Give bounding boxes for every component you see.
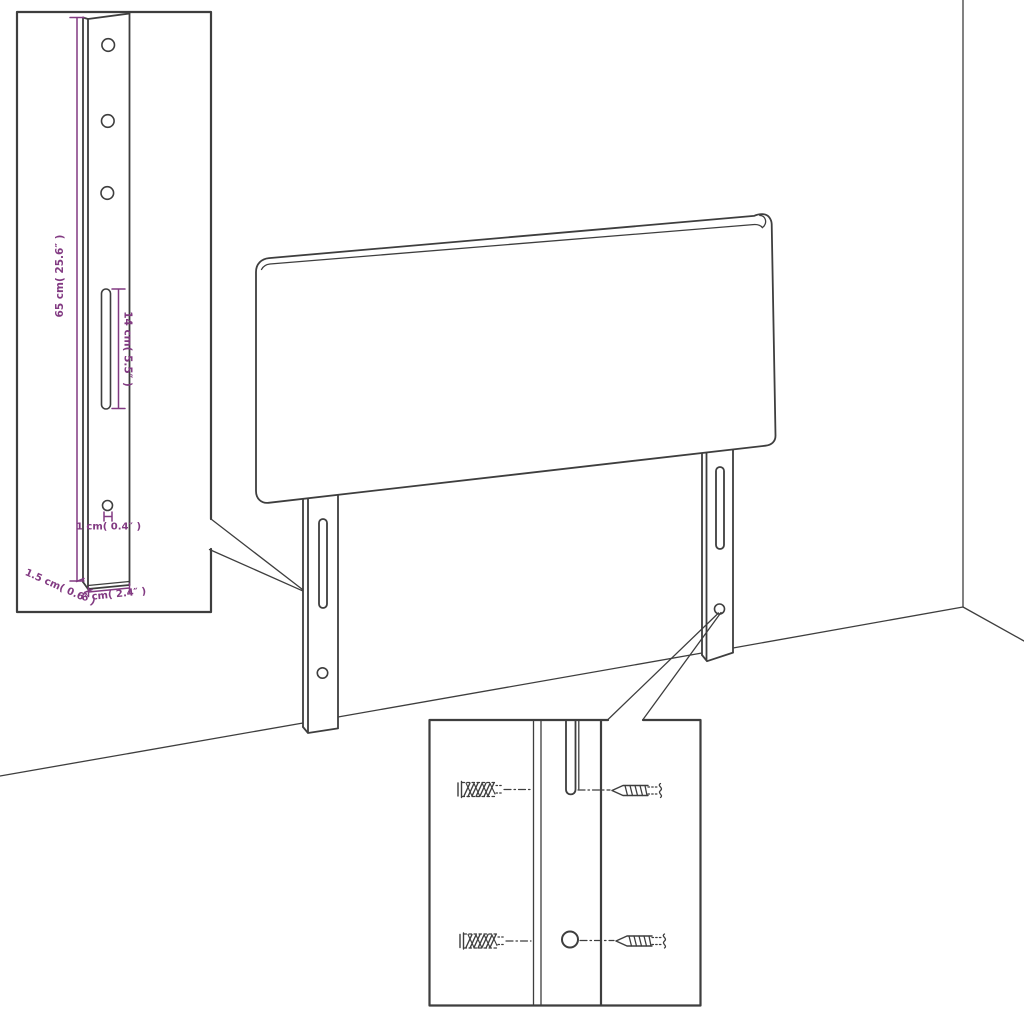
- headboard-right-leg: [702, 446, 733, 661]
- mounting-detail-inset: [430, 613, 722, 1006]
- hole-diameter-label: 1 cm( 0.4″ ): [76, 522, 141, 533]
- diagram-canvas: 65 cm( 25.6″ ) 14 cm( 5.5″ ) 1 cm( 0.4″ …: [0, 0, 1024, 1024]
- headboard-drawing: [256, 214, 776, 733]
- floor-wall-line-right: [963, 607, 1024, 641]
- panel-outline: [256, 214, 776, 503]
- bracket-inset-callout-lines: [210, 519, 303, 591]
- assembly-diagram: 65 cm( 25.6″ ) 14 cm( 5.5″ ) 1 cm( 0.4″ …: [0, 0, 1024, 1024]
- bracket-drawing: [83, 14, 130, 590]
- right-leg-slot: [716, 467, 724, 549]
- headboard-left-leg: [303, 493, 338, 733]
- height-dimension-label: 65 cm( 25.6″ ): [54, 235, 66, 318]
- headboard-panel: [256, 214, 776, 503]
- left-leg-slot: [319, 519, 327, 608]
- slot-dimension-label: 14 cm( 5.5″ ): [122, 311, 134, 387]
- height-dimension-line: [70, 18, 84, 582]
- mounting-inset-box: [430, 720, 701, 1006]
